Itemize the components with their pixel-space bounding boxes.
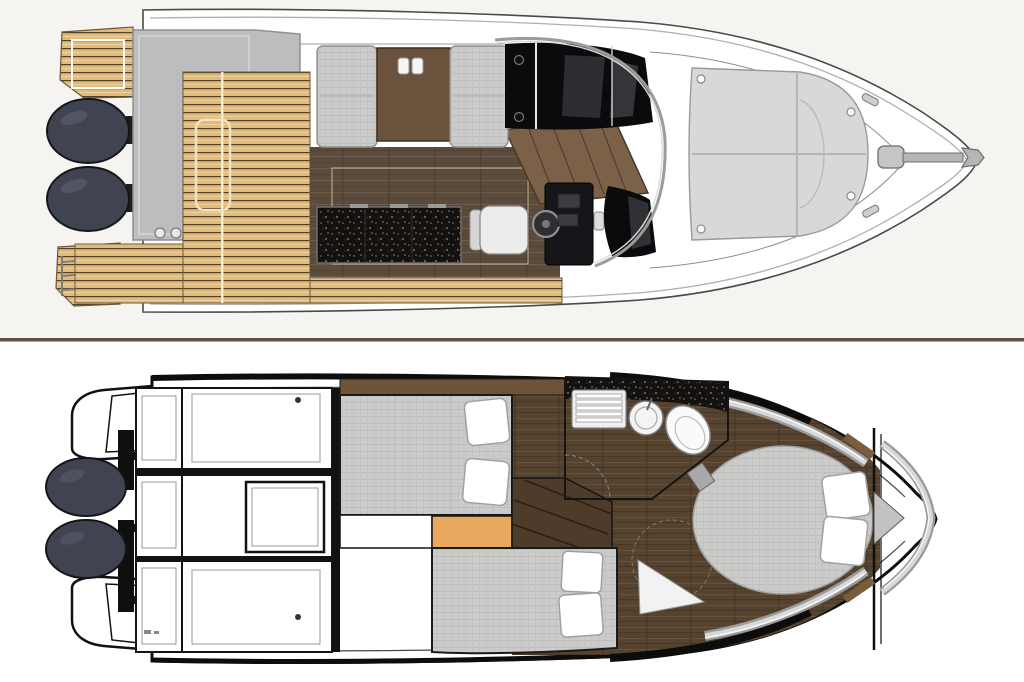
yacht-deck-plans bbox=[0, 0, 1024, 682]
hatch-hinge-2 bbox=[171, 228, 181, 238]
aft-berth-headboard-band bbox=[340, 379, 566, 395]
deck-plan-canvas bbox=[0, 0, 1024, 682]
galley-counter bbox=[317, 207, 461, 263]
console-screen-1 bbox=[558, 194, 580, 208]
head-sink bbox=[629, 401, 663, 435]
side-deck-teak-strip bbox=[310, 278, 562, 303]
mid-berth-pillow-2 bbox=[559, 593, 604, 638]
console-screen-2 bbox=[558, 214, 578, 226]
hatch-hinge-1 bbox=[155, 228, 165, 238]
cabin-step-orange bbox=[432, 516, 512, 548]
windshield-reflection-1 bbox=[562, 55, 605, 118]
island-bed-pillow-2 bbox=[820, 516, 869, 566]
locker-wall-band-2 bbox=[136, 556, 332, 562]
locker-wall-band-1 bbox=[136, 468, 332, 476]
galley-handles bbox=[350, 204, 446, 208]
cockpit-teak-aft-strip bbox=[75, 244, 183, 303]
lower-engine-port bbox=[46, 458, 126, 516]
technical-hatch bbox=[246, 482, 324, 552]
cabin-step-white bbox=[340, 515, 432, 548]
outboard-engine-port bbox=[47, 99, 129, 163]
island-bed-pillow-1 bbox=[821, 471, 871, 521]
locker-handle-dot-1 bbox=[295, 397, 301, 403]
swim-platform-port-inset bbox=[72, 40, 124, 88]
plan-divider-line bbox=[0, 338, 1024, 342]
mid-berth-pillow-1 bbox=[561, 551, 603, 593]
throttle-lever bbox=[594, 212, 604, 230]
windshield-grommet-1 bbox=[515, 56, 524, 65]
outboard-engine-starboard bbox=[47, 167, 129, 231]
table-cupholder-2 bbox=[412, 58, 423, 74]
cockpit-teak-caulk bbox=[221, 72, 224, 303]
shower-grate-slats bbox=[576, 394, 622, 422]
helm-seat bbox=[480, 206, 528, 254]
anchor-roller-box bbox=[878, 146, 904, 168]
aft-berth-pillow-2 bbox=[462, 458, 510, 506]
windshield-grommet-2 bbox=[515, 113, 524, 122]
steering-wheel-hub bbox=[542, 220, 550, 228]
lower-deck-plan bbox=[46, 376, 936, 663]
aft-berth-pillow-1 bbox=[464, 398, 510, 446]
anchor-shaft bbox=[903, 153, 963, 162]
lower-engine-starboard bbox=[46, 520, 126, 578]
locker-double-wall bbox=[332, 388, 340, 652]
cockpit-teak-floor bbox=[183, 72, 310, 303]
locker-handle-dot-2 bbox=[295, 614, 301, 620]
table-cupholder-1 bbox=[398, 58, 409, 74]
